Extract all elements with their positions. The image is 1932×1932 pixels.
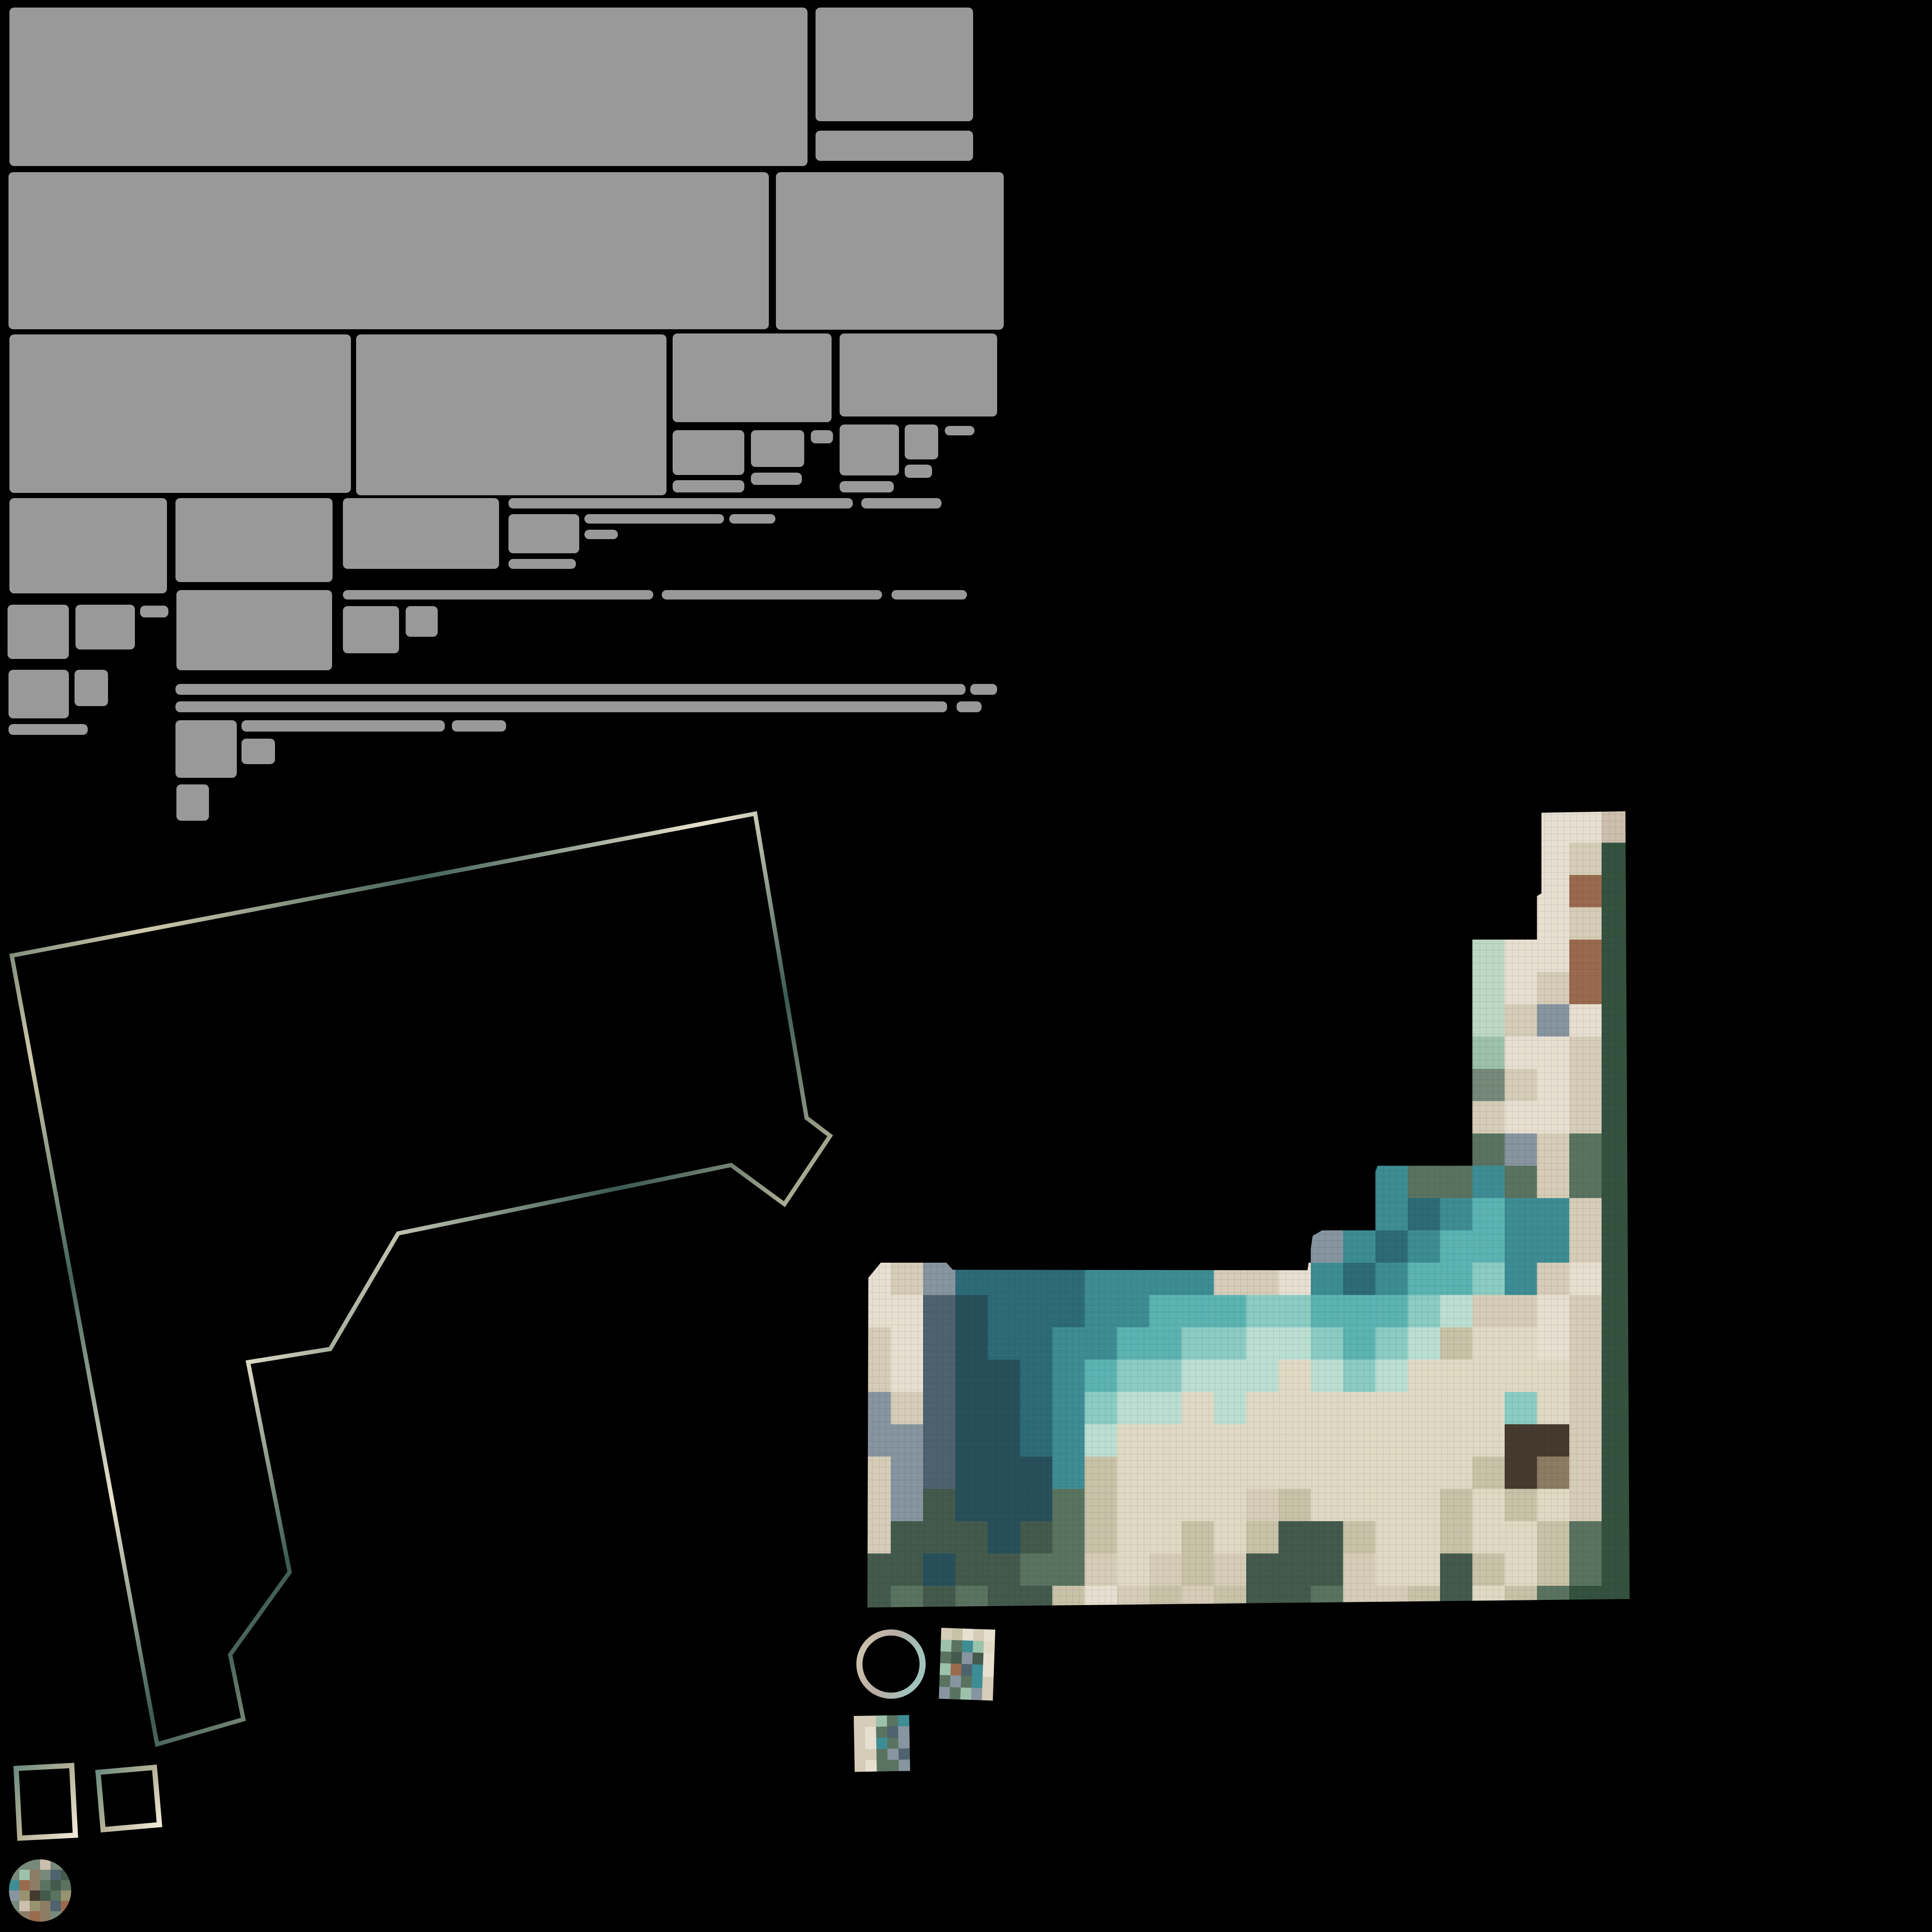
- mask-rect: [176, 784, 209, 821]
- mask-rect: [905, 465, 932, 478]
- photo-pixel: [876, 1760, 888, 1772]
- photo-pixel: [982, 1688, 993, 1700]
- photo-pixel: [983, 1653, 994, 1665]
- photo-pixel: [887, 1749, 899, 1760]
- photo-pixel: [940, 1663, 951, 1675]
- photo-pixel: [961, 1676, 972, 1688]
- mask-rect: [175, 701, 947, 712]
- photo-pixel: [960, 1688, 972, 1700]
- photo-pixel: [866, 1760, 877, 1772]
- mask-rect: [508, 498, 853, 508]
- mask-rect: [673, 333, 832, 422]
- mask-rect: [75, 670, 108, 706]
- photo-pixel: [61, 1880, 72, 1891]
- mask-rect: [508, 559, 576, 569]
- photo-pixel: [61, 1890, 72, 1901]
- photo-pixel: [865, 1715, 876, 1727]
- mask-rect: [891, 590, 967, 600]
- photo-pixel: [855, 1760, 866, 1772]
- mask-rect: [751, 473, 802, 485]
- mask-rect: [508, 514, 579, 553]
- photo-pixel: [949, 1687, 961, 1699]
- photo-pixel: [973, 1641, 984, 1653]
- photo-chip-a: [939, 1628, 995, 1700]
- mask-rect: [241, 739, 275, 764]
- mask-rect: [945, 426, 974, 435]
- photo-pixel: [40, 1880, 51, 1891]
- photo-pixel: [19, 1880, 30, 1891]
- mask-rect: [406, 606, 438, 637]
- photo-pixel: [972, 1652, 983, 1665]
- photo-pixel: [962, 1641, 973, 1653]
- mask-rect: [8, 605, 69, 659]
- photo-pixel: [50, 1901, 61, 1912]
- mask-rect: [8, 670, 69, 718]
- photo-pixel: [950, 1675, 961, 1688]
- photo-pixel: [30, 1911, 41, 1922]
- photo-pixel: [854, 1727, 865, 1739]
- mask-rect: [356, 334, 666, 495]
- photo-pixel: [982, 1676, 993, 1689]
- photo-pixel: [9, 1880, 20, 1891]
- photo-pixel: [19, 1870, 30, 1881]
- photo-pixel: [40, 1859, 51, 1870]
- mask-rect: [816, 131, 973, 161]
- mask-rect: [75, 605, 135, 650]
- photo-pixel: [887, 1726, 899, 1738]
- mask-rect: [840, 481, 894, 492]
- mask-rect: [452, 720, 506, 732]
- photo-pixel: [962, 1629, 974, 1641]
- mask-rect: [343, 498, 499, 569]
- mask-rect: [816, 8, 973, 121]
- photo-pixel: [9, 1890, 20, 1901]
- mask-rect: [673, 480, 744, 492]
- photo-pixel: [972, 1664, 983, 1676]
- photo-pixel: [40, 1911, 51, 1922]
- photo-pixel: [952, 1628, 963, 1641]
- photo-pixel: [30, 1859, 41, 1870]
- mask-rect: [861, 498, 941, 508]
- mask-rect: [584, 530, 618, 539]
- photo-pixel: [866, 1749, 877, 1761]
- photo-pixel: [898, 1726, 909, 1738]
- photo-pixel: [972, 1676, 983, 1688]
- photo-pixel: [940, 1651, 951, 1664]
- photo-pixel: [876, 1738, 888, 1749]
- photo-pixel: [898, 1715, 909, 1727]
- photo-pixel: [865, 1738, 876, 1749]
- photo-pixel: [50, 1880, 61, 1891]
- mask-rect: [840, 425, 899, 475]
- photo-pixel: [899, 1749, 910, 1760]
- mask-rect: [140, 606, 168, 617]
- photo-pixel: [40, 1901, 51, 1912]
- photo-pixel: [973, 1629, 984, 1641]
- photo-pixel: [887, 1715, 898, 1727]
- photo-pixel: [876, 1749, 888, 1761]
- mask-rect: [8, 172, 769, 329]
- photo-pixel: [939, 1687, 950, 1699]
- mask-rect: [343, 606, 399, 653]
- photo-pixel: [30, 1870, 41, 1881]
- screenshot-canvas: [0, 0, 1932, 1932]
- mask-rect: [175, 720, 237, 778]
- photo-pixel: [951, 1640, 963, 1652]
- photo-pixel: [950, 1664, 962, 1676]
- photo-pixel: [40, 1870, 51, 1881]
- photo-pixel: [939, 1675, 950, 1687]
- photo-pixel: [854, 1738, 866, 1750]
- photo-pixel: [961, 1664, 973, 1676]
- mask-rect: [343, 590, 653, 600]
- photo-pixel: [19, 1890, 30, 1901]
- photo-pixel: [941, 1640, 952, 1652]
- photo-pixel: [50, 1870, 61, 1881]
- mask-rect: [584, 514, 724, 524]
- photo-pixel: [854, 1749, 866, 1761]
- mask-rect: [957, 701, 982, 712]
- photo-pixel: [962, 1652, 973, 1665]
- mask-rect: [811, 430, 833, 443]
- mask-rect: [840, 333, 997, 416]
- photo-pixel: [983, 1665, 994, 1677]
- photo-pixel: [876, 1726, 887, 1738]
- pixel-blob: [9, 1859, 72, 1922]
- mask-rect: [905, 425, 938, 459]
- photo-pixel: [854, 1716, 865, 1728]
- photo-pixel: [865, 1727, 876, 1739]
- photo-pixel: [888, 1760, 899, 1772]
- photo-pixel: [876, 1715, 887, 1727]
- photo-pixel: [971, 1688, 983, 1700]
- photo-pixel: [898, 1737, 909, 1749]
- photo-pixel: [50, 1890, 61, 1901]
- photo-pixel: [899, 1759, 910, 1771]
- mask-rect: [751, 430, 804, 467]
- mask-rect: [9, 8, 808, 166]
- mask-rect: [8, 724, 88, 735]
- mask-rect: [662, 590, 882, 600]
- mask-rect: [673, 430, 744, 475]
- photo-pixel: [984, 1629, 995, 1641]
- photo-pixel: [941, 1628, 952, 1640]
- mask-rect: [241, 720, 445, 732]
- scene: [0, 0, 1932, 1932]
- mask-rect: [776, 172, 1004, 330]
- photo-chip-b: [854, 1715, 910, 1772]
- photo-pixel: [951, 1652, 962, 1664]
- mask-rect: [970, 684, 997, 695]
- photo-pixel: [19, 1901, 30, 1912]
- photo-pixel: [30, 1901, 41, 1912]
- photo-pixel: [887, 1738, 899, 1749]
- mask-rect: [9, 334, 351, 493]
- photo-pixel: [40, 1890, 51, 1901]
- mask-rect: [9, 498, 167, 593]
- mask-rect: [176, 590, 332, 670]
- photo-pixel: [983, 1641, 995, 1653]
- mask-rect: [729, 514, 775, 524]
- mask-rect: [175, 498, 333, 582]
- photo-pixel: [30, 1880, 41, 1891]
- photo-pixel: [30, 1890, 41, 1901]
- mask-rect: [175, 684, 966, 695]
